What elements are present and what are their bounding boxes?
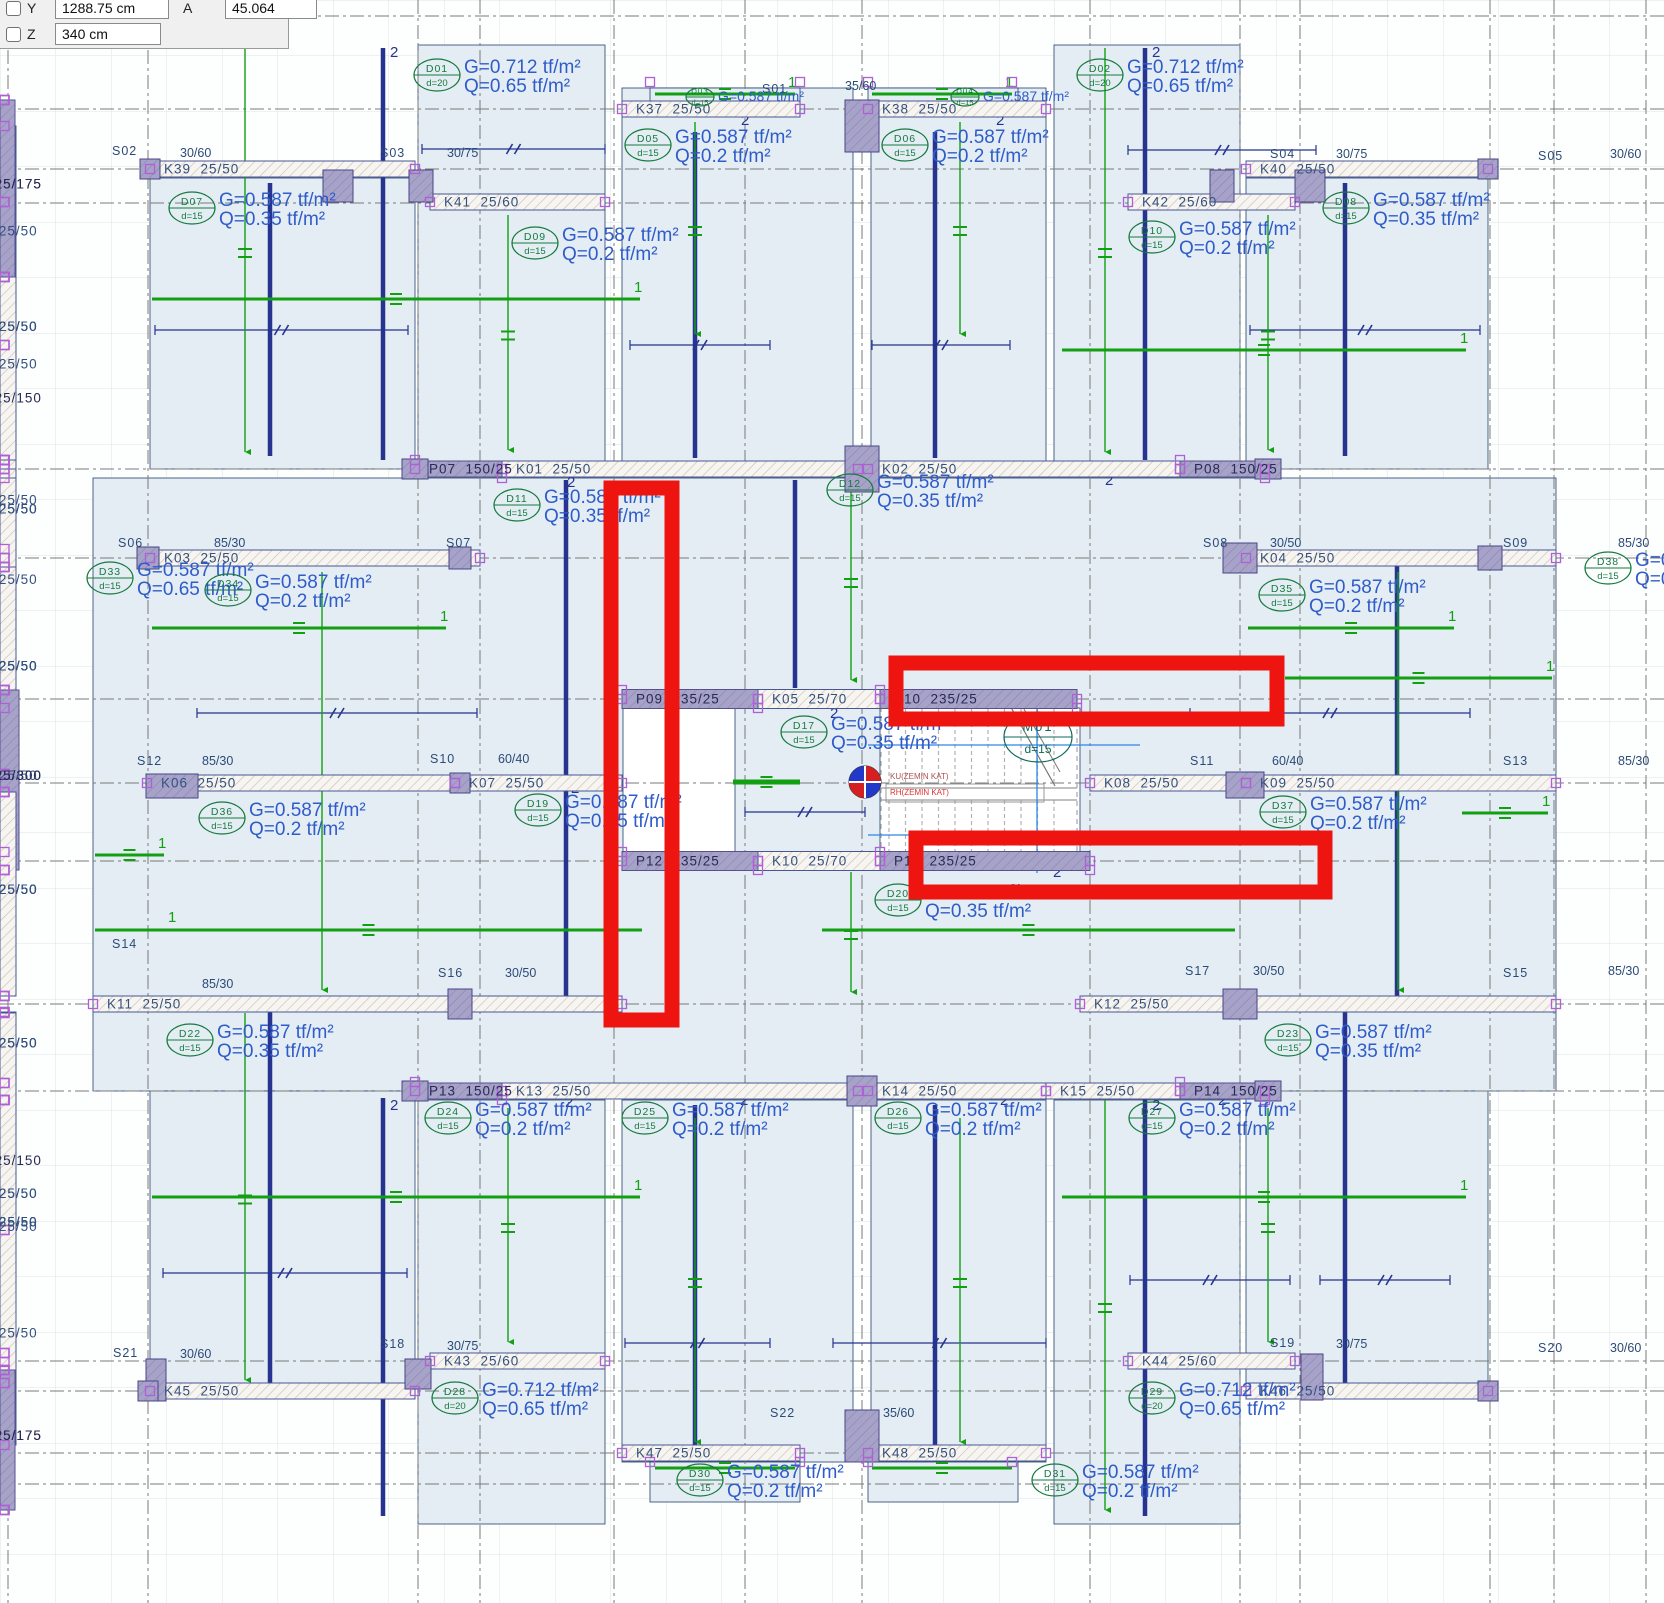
annotation-id: D31 [1044,1468,1066,1480]
annotation-id: D03 [691,87,709,96]
annotation-id: D09 [524,231,546,243]
slab-label-S05: S05 [1538,149,1563,163]
span-number: 1 [158,835,166,852]
dimension-label: 30/60 [180,1347,211,1361]
dimension-label: 30/75 [447,146,478,160]
annotation-depth: d=15 [793,735,814,746]
dimension-label: 85/30 [202,977,233,991]
strip-number: 2 [390,44,398,61]
annotation-depth: d=20 [444,1401,465,1412]
annotation-g-load: G=0.587 tf/m² [675,127,792,148]
slab-label-S08: S08 [1203,536,1228,550]
annotation-q-load: Q=0.2 tf/m² [1179,1119,1275,1140]
annotation-id: D08 [1335,196,1357,208]
dimension-label: 30/50 [1270,536,1301,550]
annotation-depth: d=15 [1335,211,1356,222]
beam-label-K54: K54 25/50 [0,659,38,674]
annotation-g-load: G=0.587 tf/m² [1309,577,1426,598]
slab-label-S15: S15 [1503,966,1528,980]
beam-label-K53: K53 25/50 [0,882,38,897]
stair-text: RH(ZEMIN KAT) [890,788,949,797]
beam-label-K15: K15 25/50 [1060,1084,1135,1099]
dimension-label: 30/50 [505,966,536,980]
annotation-g-load: G=0.587 tf/m² [565,792,682,813]
annotation-depth: d=15 [689,1483,710,1494]
annotation-depth: d=15 [692,98,709,107]
slab-label-S18: S18 [380,1337,405,1351]
annotation-id: D02 [1089,63,1111,75]
annotation-depth: d=20 [1141,1401,1162,1412]
slab-label-S02: S02 [112,144,137,158]
annotation-q-load: Q=0.35 tf/m² [219,209,325,230]
beam-label-K39: K39 25/50 [164,162,239,177]
beam-label-P29: P29 25/150 [0,1153,42,1168]
beam-label-K35: K35 25/50 [0,1215,38,1230]
annotation-depth: d=15 [181,211,202,222]
annotation-q-load: Q=0.2 tf/m² [1179,238,1275,259]
annotation-id: D01 [426,63,448,75]
dimension-label: 85/30 [1618,754,1649,768]
beam-label-K36: K36 25/50 [0,319,38,334]
annotation-depth: d=15 [839,493,860,504]
annotation-g-load: G=0.587 tf/m² [1315,1022,1432,1043]
beam-label-K43: K43 25/60 [444,1354,519,1369]
slab-label-S12: S12 [137,754,162,768]
column [1478,546,1502,570]
slab-label-S17: S17 [1185,964,1210,978]
beam-label-K09: K09 25/50 [1260,776,1335,791]
annotation-q-load: Q=0.2 tf/m² [727,1481,823,1502]
annotation-q-load: Q=0.2 tf/m² [672,1119,768,1140]
column [845,100,879,152]
annotation-q-load: Q=0.65 tf/m² [1635,569,1664,590]
dimension-label: 60/40 [498,752,529,766]
dimension-label: 30/50 [1253,964,1284,978]
beam-label-K44: K44 25/60 [1142,1354,1217,1369]
beam-label-P30: P30 25/300 [0,768,42,783]
y-input[interactable]: 1288.75 cm [55,0,169,19]
annotation-q-load: Q=0.2 tf/m² [925,1119,1021,1140]
annotation-depth: d=15 [1597,571,1618,582]
beam-label-K56: K56 25/50 [0,502,38,517]
annotation-depth: d=15 [1024,742,1051,756]
beam-label-K12: K12 25/50 [1094,997,1169,1012]
annotation-depth: d=15 [99,581,120,592]
annotation-id: D25 [634,1106,656,1118]
beam-label-P10: P10 235/25 [894,692,978,707]
beam-label-K06: K06 25/50 [161,776,236,791]
beam-label-K07: K07 25/50 [469,776,544,791]
annotation-id: D26 [887,1106,909,1118]
annotation-depth: d=20 [426,78,447,89]
annotation-depth: d=15 [1271,598,1292,609]
beam-label-K13: K13 25/50 [516,1084,591,1099]
annotation-id: D30 [689,1468,711,1480]
annotation-depth: d=15 [1272,815,1293,826]
beam-label-K26: K26 25/50 [0,572,38,587]
annotation-g-load: G=0.587 tf/m² [1635,550,1664,571]
z-checkbox[interactable] [6,27,21,42]
span-number: 1 [440,608,448,625]
beam-label-K01: K01 25/50 [516,462,591,477]
annotation-id: D11 [506,493,527,505]
annotation-q-load: Q=0.2 tf/m² [932,146,1028,167]
annotation-depth: d=15 [634,1121,655,1132]
slab-label-S16: S16 [438,966,463,980]
annotation-id: D05 [637,133,659,145]
annotation-depth: d=15 [1141,1121,1162,1132]
annotation-depth: d=15 [957,98,974,107]
dimension-label: 85/30 [1608,964,1639,978]
slab-label-S22: S22 [770,1406,795,1420]
origin-marker [849,766,881,798]
annotation-g-load: G=0.587 tf/m² [562,225,679,246]
annotation-q-load: Q=0.35 tf/m² [925,901,1031,922]
a-input[interactable]: 45.064 [225,0,317,19]
beam-label-K47: K47 25/50 [636,1446,711,1461]
annotation-depth: d=15 [1277,1043,1298,1054]
beam-label-K04: K04 25/50 [1260,551,1335,566]
annotation-q-load: Q=0.35 tf/m² [1373,209,1479,230]
annotation-g-load: G=0.587 tf/m² [219,190,336,211]
annotation-id: D07 [181,196,203,208]
span-number: 1 [634,279,642,296]
annotation-depth: d=15 [887,1121,908,1132]
beam-label-P08: P08 150/25 [1194,462,1278,477]
annotation-q-load: Q=0.65 tf/m² [1127,76,1233,97]
column [1223,989,1257,1019]
annotation-g-load: G=0.712 tf/m² [1179,1380,1296,1401]
annotation-q-load: Q=0.35 tf/m² [877,491,983,512]
slab-label-S04: S04 [1270,147,1295,161]
beam-label-K38: K38 25/50 [882,102,957,117]
annotation-id: D36 [211,806,233,818]
annotation-id: D17 [793,720,815,732]
annotation-g-load: G=0.712 tf/m² [482,1380,599,1401]
beam-label-P32: P32 25/175 [0,177,42,192]
dimension-label: 30/75 [1336,147,1367,161]
slab-panel [150,1091,415,1391]
y-checkbox[interactable] [6,1,21,16]
slab-label-S10: S10 [430,752,455,766]
column [449,547,471,569]
annotation-g-load: G=0.587 tf/m² [255,572,372,593]
annotation-depth: d=15 [894,148,915,159]
floor-plan-canvas[interactable]: 22222222222222211111111111111KU(ZEMIN KA… [0,0,1664,1603]
beam-label-K27: K27 25/50 [0,1326,38,1341]
column [140,159,160,179]
cad-application-window: 22222222222222211111111111111KU(ZEMIN KA… [0,0,1664,1603]
column [1478,1381,1498,1401]
annotation-id: D12 [839,478,861,490]
annotation-g-load: G=0.587 tf/m² [1310,794,1427,815]
annotation-g-load: G=0.587 tf/m² [249,800,366,821]
beam-label-K25: K25 25/50 [0,224,38,239]
span-number: 1 [1460,1177,1468,1194]
column [845,1410,879,1462]
beam-label-K41: K41 25/60 [444,195,519,210]
slab-panel [418,1100,605,1524]
annotation-g-load: G=0.587 tf/m² [925,1100,1042,1121]
annotation-depth: d=15 [637,148,658,159]
dimension-label: 30/60 [1610,147,1641,161]
annotation-g-load: G=0.587 tf/m² [475,1100,592,1121]
slab-label-S14: S14 [112,937,137,951]
annotation-q-load: Q=0.65 tf/m² [464,76,570,97]
z-input[interactable]: 340 cm [55,23,161,45]
slab-label-S03: S03 [380,146,405,160]
beam-label-P11: P11 235/25 [894,854,977,869]
column [402,459,428,479]
column [1226,772,1264,798]
annotation-g-load: G=0.587 tf/m² [877,472,994,493]
beam-label-K45: K45 25/50 [164,1384,239,1399]
span-number: 1 [168,909,176,926]
annotation-q-load: Q=0.35 tf/m² [544,506,650,527]
annotation-g-load: G=0.587 tf/m² [727,1462,844,1483]
span-number: 1 [1546,658,1554,675]
annotation-id: D23 [1277,1028,1299,1040]
annotation-depth: d=15 [1044,1483,1065,1494]
annotation-depth: d=15 [524,246,545,257]
annotation-g-load: G=0.712 tf/m² [1127,57,1244,78]
slab-label-S07: S07 [446,536,471,550]
annotation-q-load: Q=0.2 tf/m² [255,591,351,612]
beam-label-K14: K14 25/50 [882,1084,957,1099]
annotation-id: D28 [444,1386,466,1398]
annotation-q-load: Q=0.2 tf/m² [249,819,345,840]
beam-label-K42: K42 25/60 [1142,195,1217,210]
annotation-q-load: Q=0.2 tf/m² [475,1119,571,1140]
column [405,1359,431,1389]
annotation-id: D33 [99,566,121,578]
annotation-id: D19 [527,798,549,810]
annotation-g-load: G=0.587 tf/m² [983,88,1069,104]
annotation-depth: d=15 [1141,240,1162,251]
annotation-g-load: G=0.587 tf/m² [1373,190,1490,211]
beam-label-K55: K55 25/50 [0,1186,38,1201]
y-label: Y [27,0,41,16]
annotation-id: D04 [956,87,974,96]
annotation-q-load: Q=0.35 tf/m² [217,1041,323,1062]
annotation-id: D06 [894,133,916,145]
slab-label-S06: S06 [118,536,143,550]
column [402,1081,428,1101]
slab-panel [622,1100,853,1462]
beam-label-K10: K10 25/70 [772,854,847,869]
annotation-depth: d=15 [217,593,238,604]
slab-label-S11: S11 [1190,754,1214,768]
column [448,989,472,1019]
annotation-q-load: Q=0.2 tf/m² [1082,1481,1178,1502]
slab-label-S09: S09 [1503,536,1528,550]
annotation-q-load: Q=0.35 tf/m² [831,733,937,754]
annotation-id: D35 [1271,583,1293,595]
annotation-id: D34 [217,578,239,590]
annotation-g-load: G=0.587 tf/m² [932,127,1049,148]
stair-text: KU(ZEMIN KAT) [890,772,949,781]
dimension-label: 85/30 [202,754,233,768]
annotation-g-load: G=0.587 tf/m² [1179,219,1296,240]
annotation-g-load: G=0.712 tf/m² [464,57,581,78]
annotation-depth: d=15 [506,508,527,519]
z-label: Z [27,26,41,42]
dimension-label: 30/60 [180,146,211,160]
annotation-g-load: G=0.587 tf/m² [1179,1100,1296,1121]
slab-label-S13: S13 [1503,754,1528,768]
annotation-q-load: Q=0.2 tf/m² [562,244,658,265]
annotation-depth: d=15 [437,1121,458,1132]
beam-label-K05: K05 25/70 [772,692,847,707]
dimension-label: 85/30 [214,536,245,550]
column [1478,159,1498,179]
dimension-label: 85/30 [1618,536,1649,550]
dimension-label: 30/75 [1336,1337,1367,1351]
annotation-g-load: G=0.587 tf/m² [718,88,804,104]
annotation-q-load: Q=0.35 tf/m² [1315,1041,1421,1062]
beam-label-K31: K31 25/50 [0,1036,38,1051]
slab-label-S20: S20 [1538,1341,1563,1355]
annotation-id: D22 [179,1028,201,1040]
strip-number: 2 [390,1097,398,1114]
annotation-depth: d=20 [1089,78,1110,89]
beam-label-K23: K23 25/50 [0,357,38,372]
coordinate-panel: Y 1288.75 cm A 45.064 Z 340 cm [0,0,289,49]
annotation-depth: d=15 [887,903,908,914]
beam-label-K08: K08 25/50 [1104,776,1179,791]
beam-label-P13: P13 150/25 [429,1084,513,1099]
beam-label-K40: K40 25/50 [1260,162,1335,177]
beam-label-K11: K11 25/50 [107,997,181,1012]
annotation-g-load: G=0.587 tf/m² [1082,1462,1199,1483]
annotation-q-load: Q=0.2 tf/m² [1309,596,1405,617]
annotation-id: D24 [437,1106,459,1118]
annotation-q-load: Q=0.65 tf/m² [482,1399,588,1420]
annotation-id: D27 [1141,1106,1163,1118]
beam-label-P31: P31 25/175 [0,1428,42,1443]
span-number: 1 [1542,793,1550,810]
annotation-q-load: Q=0.65 tf/m² [1179,1399,1285,1420]
dimension-label: 30/60 [1610,1341,1641,1355]
span-number: 1 [634,1177,642,1194]
annotation-id: D37 [1272,800,1294,812]
a-label: A [183,0,197,16]
annotation-depth: d=15 [211,821,232,832]
slab-label-S19: S19 [1270,1336,1295,1350]
slab-label-S21: S21 [113,1346,138,1360]
annotation-g-load: G=0.587 tf/m² [672,1100,789,1121]
annotation-id: D10 [1141,225,1163,237]
annotation-q-load: Q=0.2 tf/m² [675,146,771,167]
annotation-id: D38 [1597,556,1619,568]
span-number: 1 [1448,608,1456,625]
beam-label-P14: P14 150/25 [1194,1084,1278,1099]
annotation-g-load: G=0.587 tf/m² [217,1022,334,1043]
annotation-id: D20 [887,888,909,900]
dimension-label: 60/40 [1272,754,1303,768]
annotation-depth: d=15 [179,1043,200,1054]
span-number: 1 [1460,330,1468,347]
dimension-label: 35/60 [883,1406,914,1420]
beam-label-P28: P28 25/150 [0,391,42,406]
dimension-label: 30/75 [447,1339,478,1353]
annotation-id: D29 [1141,1386,1163,1398]
annotation-depth: d=15 [527,813,548,824]
beam-label-P07: P07 150/25 [429,462,513,477]
dimension-label: 35/60 [845,79,876,93]
beam-label-K48: K48 25/50 [882,1446,957,1461]
